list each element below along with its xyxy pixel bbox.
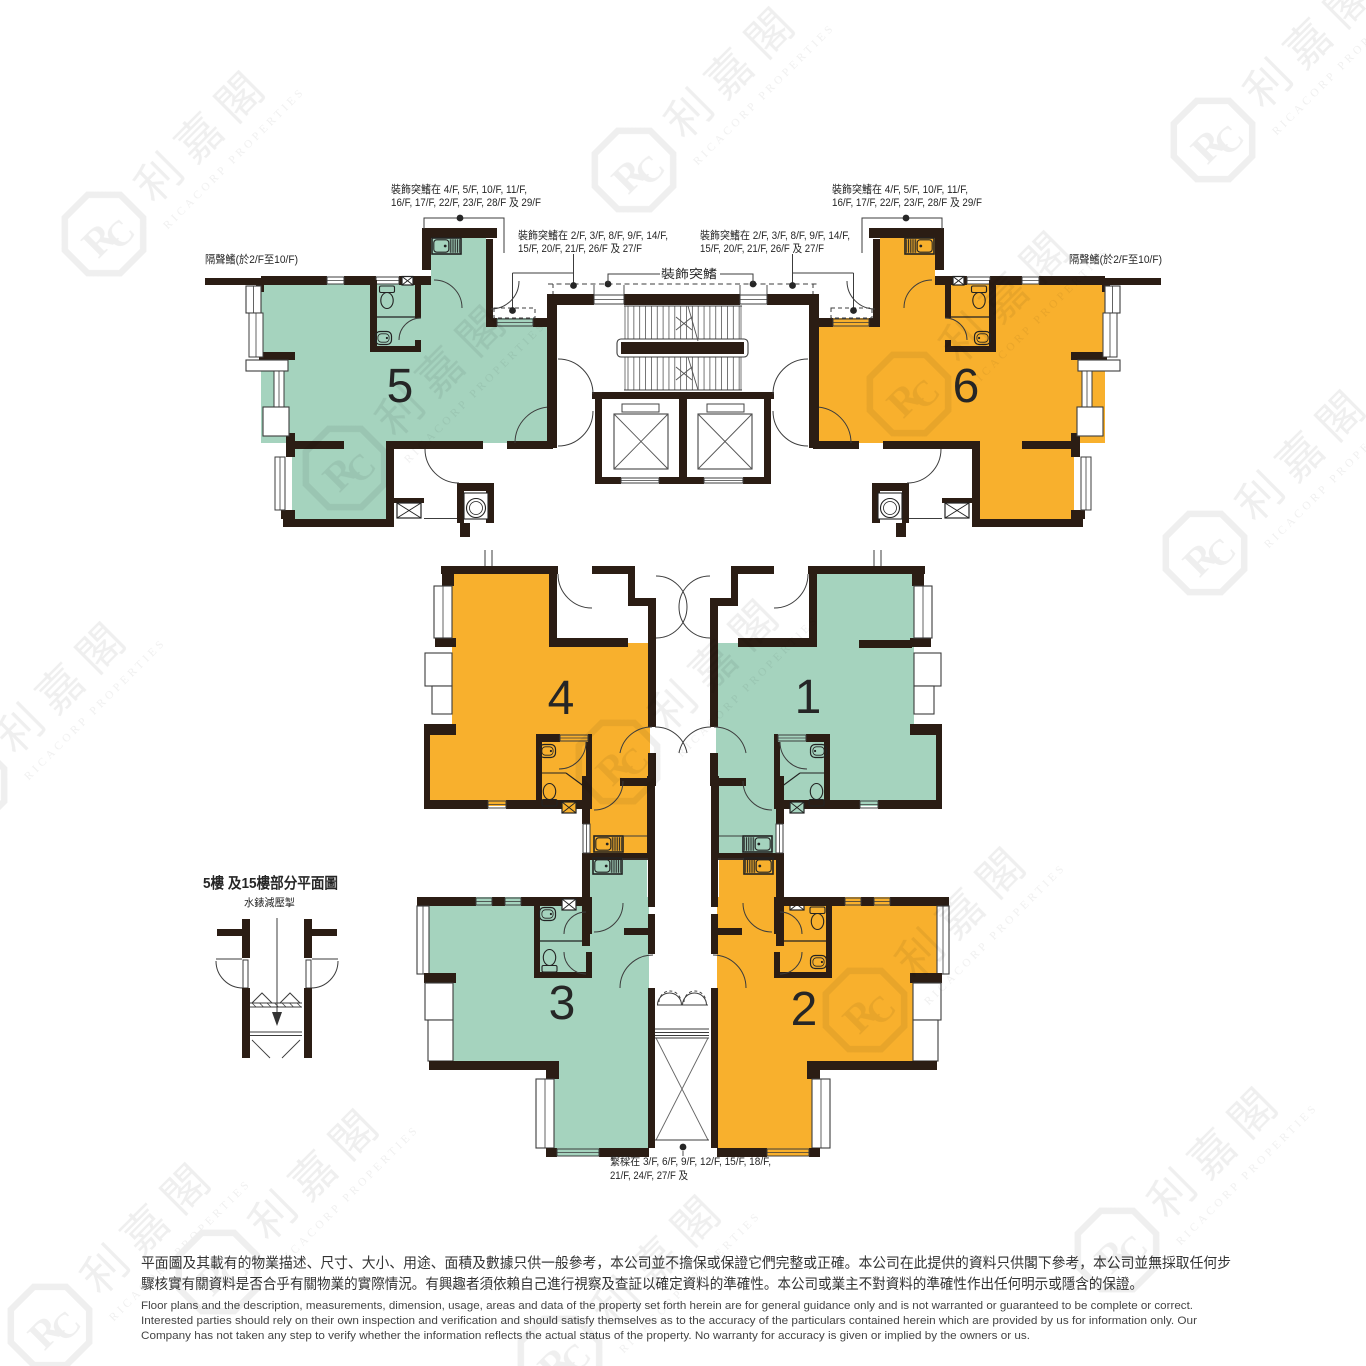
svg-text:4: 4 bbox=[548, 672, 575, 725]
svg-text:15/F, 20/F, 21/F, 26/F 及 27/F: 15/F, 20/F, 21/F, 26/F 及 27/F bbox=[518, 243, 642, 255]
svg-text:裝飾突鰭在 2/F, 3/F, 8/F, 9/F, 14/F: 裝飾突鰭在 2/F, 3/F, 8/F, 9/F, 14/F, bbox=[518, 228, 668, 242]
svg-text:水錶減壓掣: 水錶減壓掣 bbox=[244, 896, 295, 909]
svg-text:繫樑在 3/F, 6/F, 9/F, 12/F, 15/F,: 繫樑在 3/F, 6/F, 9/F, 12/F, 15/F, 18/F, bbox=[610, 1154, 771, 1168]
svg-text:裝飾突鰭在 4/F, 5/F, 10/F, 11/F,: 裝飾突鰭在 4/F, 5/F, 10/F, 11/F, bbox=[832, 182, 968, 196]
svg-text:1: 1 bbox=[795, 671, 822, 724]
svg-text:2: 2 bbox=[791, 983, 818, 1036]
svg-text:裝飾突鰭: 裝飾突鰭 bbox=[661, 266, 717, 281]
svg-text:21/F, 24/F, 27/F 及: 21/F, 24/F, 27/F 及 bbox=[610, 1170, 688, 1182]
svg-text:16/F, 17/F, 22/F, 23/F, 28/F: 16/F, 17/F, 22/F, 23/F, 28/F 及 29/F bbox=[391, 197, 541, 209]
svg-text:Interested parties should rely: Interested parties should rely on their … bbox=[141, 1315, 1197, 1327]
svg-text:裝飾突鰭在 2/F, 3/F, 8/F, 9/F, 14/F: 裝飾突鰭在 2/F, 3/F, 8/F, 9/F, 14/F, bbox=[700, 228, 850, 242]
svg-text:15/F, 20/F, 21/F, 26/F 及 27/F: 15/F, 20/F, 21/F, 26/F 及 27/F bbox=[700, 243, 824, 255]
svg-text:16/F, 17/F, 22/F, 23/F, 28/F: 16/F, 17/F, 22/F, 23/F, 28/F 及 29/F bbox=[832, 197, 982, 209]
svg-text:隔聲鰭(於2/F至10/F): 隔聲鰭(於2/F至10/F) bbox=[205, 252, 298, 266]
svg-text:裝飾突鰭在 4/F, 5/F, 10/F, 11/F,: 裝飾突鰭在 4/F, 5/F, 10/F, 11/F, bbox=[391, 182, 527, 196]
svg-text:5樓 及15樓部分平面圖: 5樓 及15樓部分平面圖 bbox=[203, 874, 338, 892]
svg-text:3: 3 bbox=[549, 977, 576, 1030]
